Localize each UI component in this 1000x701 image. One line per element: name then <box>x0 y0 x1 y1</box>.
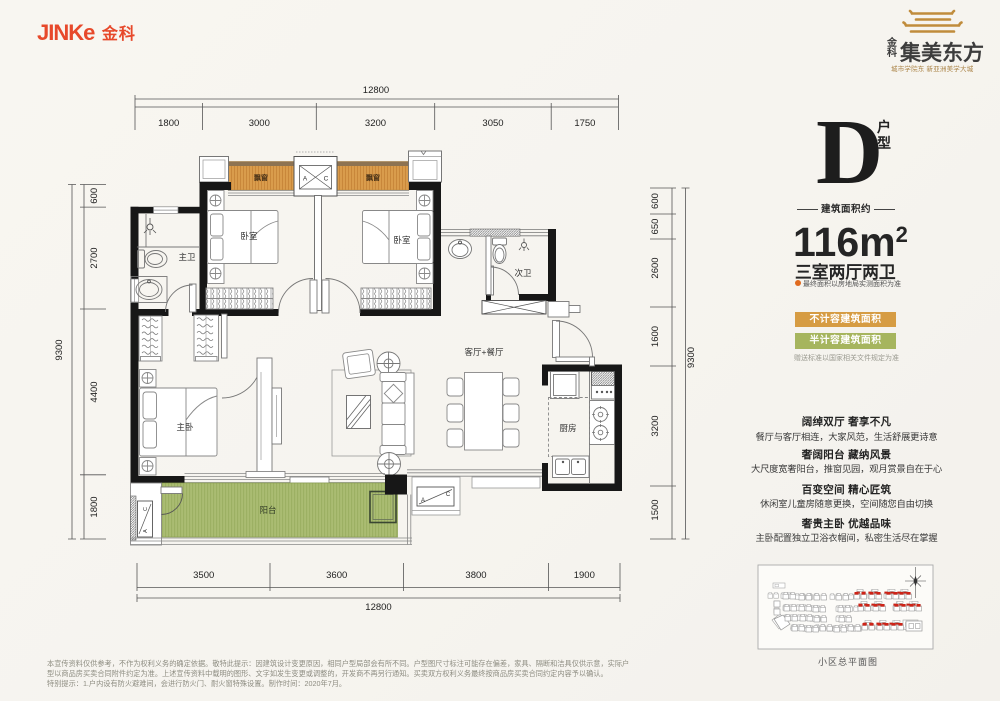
svg-text:卧室: 卧室 <box>240 231 258 241</box>
svg-text:1600: 1600 <box>650 326 661 347</box>
svg-text:3800: 3800 <box>465 570 486 581</box>
svg-text:2700: 2700 <box>89 247 100 268</box>
svg-text:C: C <box>446 492 451 498</box>
svg-text:1750: 1750 <box>574 118 595 129</box>
svg-text:阳台: 阳台 <box>259 505 276 515</box>
svg-text:主卧: 主卧 <box>176 422 194 432</box>
svg-text:9300: 9300 <box>54 339 65 360</box>
svg-text:650: 650 <box>650 219 661 235</box>
svg-text:3000: 3000 <box>249 118 270 129</box>
svg-text:次卫: 次卫 <box>514 268 532 278</box>
svg-text:4400: 4400 <box>89 381 100 402</box>
svg-text:小区总平面图: 小区总平面图 <box>818 656 878 667</box>
svg-text:卧室: 卧室 <box>393 235 411 245</box>
svg-text:3200: 3200 <box>365 118 386 129</box>
svg-text:C: C <box>324 176 329 183</box>
svg-text:600: 600 <box>650 193 661 209</box>
svg-text:A: A <box>421 498 425 504</box>
svg-text:1900: 1900 <box>574 570 595 581</box>
svg-text:主卫: 主卫 <box>178 252 196 262</box>
svg-text:C: C <box>143 507 149 511</box>
svg-text:1800: 1800 <box>89 496 100 517</box>
svg-text:9300: 9300 <box>686 347 697 368</box>
svg-text:厨房: 厨房 <box>559 423 576 433</box>
svg-text:1800: 1800 <box>158 118 179 129</box>
svg-text:3600: 3600 <box>326 570 347 581</box>
svg-text:12800: 12800 <box>363 85 389 96</box>
svg-text:2600: 2600 <box>650 257 661 278</box>
svg-text:飘窗: 飘窗 <box>254 173 268 182</box>
svg-text:3050: 3050 <box>482 118 503 129</box>
svg-text:A: A <box>143 529 149 533</box>
svg-text:A: A <box>303 176 308 183</box>
svg-text:12800: 12800 <box>365 602 391 613</box>
svg-text:600: 600 <box>89 188 100 204</box>
svg-text:客厅+餐厅: 客厅+餐厅 <box>465 347 504 357</box>
svg-text:3500: 3500 <box>193 570 214 581</box>
svg-text:飘窗: 飘窗 <box>366 173 380 182</box>
